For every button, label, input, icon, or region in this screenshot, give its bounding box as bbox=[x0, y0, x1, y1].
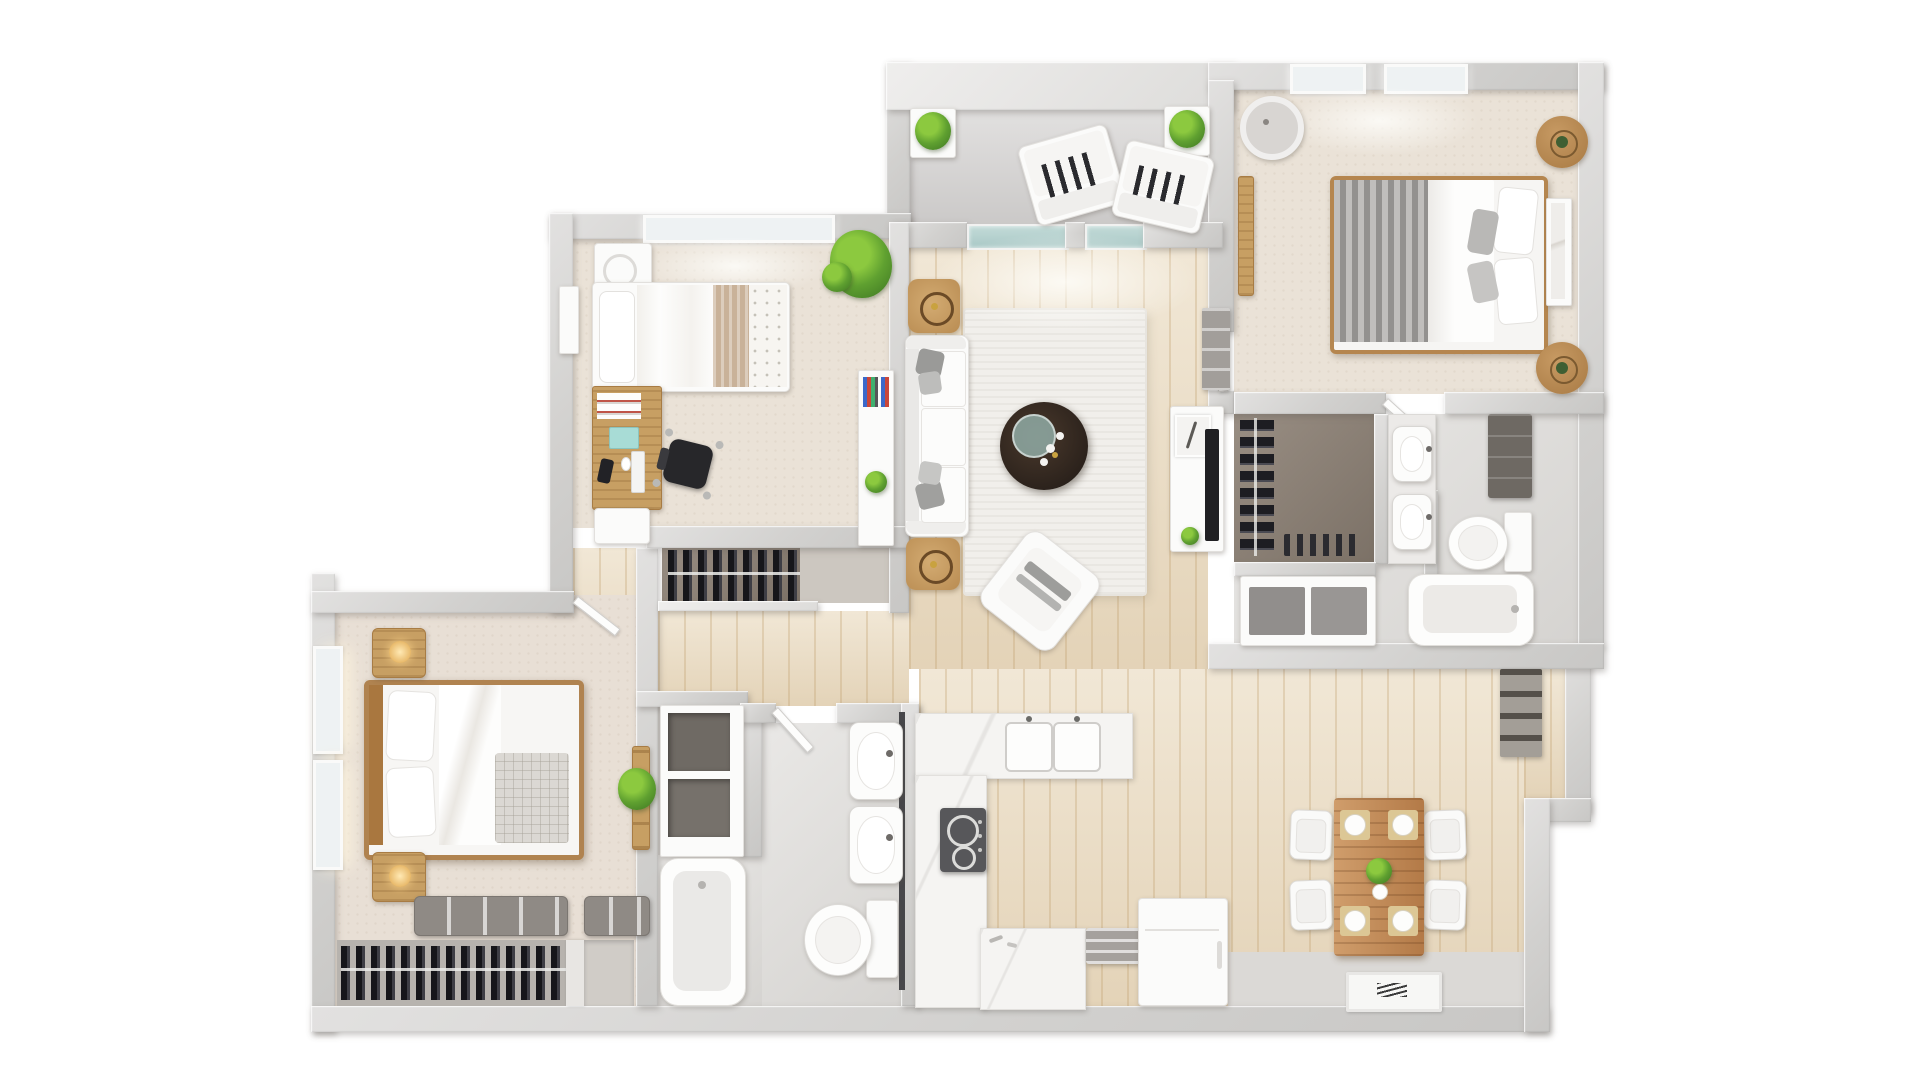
dining-chair bbox=[1289, 809, 1333, 860]
kitchen-faucet bbox=[1026, 716, 1032, 722]
chair-wheel bbox=[652, 478, 662, 488]
wall bbox=[311, 591, 574, 613]
wall bbox=[1374, 414, 1388, 564]
bedroom3-window bbox=[643, 215, 835, 243]
floor-plan-canvas bbox=[0, 0, 1920, 1080]
faucet bbox=[1426, 446, 1432, 452]
counter-detail bbox=[1007, 942, 1018, 948]
coffee-cup bbox=[1040, 458, 1048, 466]
bedroom2-bed bbox=[1330, 176, 1548, 354]
desk-notebook bbox=[609, 427, 639, 449]
stove-dial bbox=[978, 820, 982, 824]
bookshelf-console bbox=[858, 370, 894, 546]
bedroom3-closet-rod bbox=[668, 572, 800, 575]
bedroom2-window bbox=[1384, 64, 1468, 94]
sofa-pillow bbox=[917, 460, 942, 485]
closet-shelf-bay bbox=[584, 940, 634, 1006]
tv-console bbox=[1170, 406, 1224, 552]
side-table-tray bbox=[920, 292, 954, 326]
place-setting bbox=[1388, 906, 1418, 936]
closet-mat bbox=[800, 548, 889, 603]
bed-pillow bbox=[385, 690, 437, 762]
cart-lid-line bbox=[1145, 929, 1219, 931]
bed-pillow bbox=[1493, 186, 1540, 256]
bed-polka-blanket bbox=[749, 285, 787, 387]
leaning-wall-art bbox=[1546, 198, 1572, 306]
dining-chair bbox=[1423, 879, 1467, 930]
bed-pillow bbox=[385, 766, 437, 838]
wall bbox=[1065, 222, 1085, 248]
dish-rack bbox=[1086, 928, 1142, 964]
place-setting bbox=[1388, 810, 1418, 840]
kitchen-counter-bottom bbox=[980, 928, 1086, 1010]
wall bbox=[1524, 798, 1550, 1032]
wall bbox=[1234, 562, 1376, 576]
centerpiece-bowl bbox=[1372, 884, 1388, 900]
desk-phone bbox=[597, 458, 615, 484]
closet-shoe-row bbox=[1284, 534, 1362, 556]
doormat bbox=[1346, 972, 1442, 1012]
nightstand-plant bbox=[1556, 362, 1568, 374]
dining-chair bbox=[1423, 809, 1467, 860]
sofa-pillow bbox=[918, 371, 943, 396]
balcony-parapet-wall bbox=[886, 62, 1234, 110]
potted-plant-leaf bbox=[822, 262, 852, 292]
burner bbox=[947, 815, 979, 847]
gold-decor bbox=[1052, 452, 1058, 458]
bathroom2-sink bbox=[849, 722, 903, 800]
master-closet bbox=[337, 940, 573, 1006]
planter-plant bbox=[1169, 110, 1205, 148]
doormat-motif bbox=[1377, 983, 1407, 997]
cooktop bbox=[940, 808, 986, 872]
bathtub bbox=[1408, 574, 1534, 646]
wall bbox=[1234, 392, 1386, 414]
bedroom3-single-bed bbox=[592, 282, 790, 392]
wall bbox=[549, 213, 573, 613]
wall bbox=[1208, 80, 1234, 332]
console-books bbox=[863, 377, 889, 407]
sofa-cushion bbox=[921, 408, 966, 466]
potted-plant bbox=[618, 768, 656, 810]
master-closet-rod bbox=[341, 968, 567, 971]
bedroom2-wall-bench bbox=[1238, 176, 1254, 296]
coffee-table bbox=[1000, 402, 1088, 490]
wall bbox=[1208, 643, 1604, 669]
wall bbox=[1565, 645, 1591, 813]
desk bbox=[592, 386, 662, 510]
desk-mouse bbox=[621, 457, 631, 471]
sliding-glass-door-pane bbox=[1085, 224, 1147, 250]
office-chair-seat bbox=[661, 437, 714, 490]
bed-knit-blanket bbox=[495, 753, 569, 843]
closet-divider bbox=[566, 940, 584, 1006]
vanity-door bbox=[1311, 587, 1367, 635]
art-canvas bbox=[1551, 203, 1565, 299]
nightstand-plant bbox=[1556, 136, 1568, 148]
side-table-decor bbox=[930, 561, 937, 568]
console-plant bbox=[1181, 527, 1199, 545]
bedroom2-window bbox=[1290, 64, 1366, 94]
closet-rod bbox=[1254, 418, 1257, 556]
cubby bbox=[668, 713, 730, 771]
sliding-glass-door bbox=[967, 224, 1069, 250]
vanity-door bbox=[1249, 587, 1305, 635]
ceiling-fan bbox=[1240, 96, 1304, 160]
centerpiece-plant bbox=[1366, 858, 1392, 884]
cubby bbox=[668, 779, 730, 837]
side-table-tray bbox=[919, 550, 953, 584]
sectional-sofa bbox=[905, 335, 969, 537]
side-table-decor bbox=[931, 303, 938, 310]
kitchen-sink-basin bbox=[1053, 722, 1101, 772]
stove-dial bbox=[978, 834, 982, 838]
sofa-armrest bbox=[906, 336, 966, 349]
chair-wheel bbox=[664, 428, 674, 438]
nightstand bbox=[372, 628, 426, 678]
storage-bench bbox=[414, 896, 568, 936]
cart-handle bbox=[1217, 941, 1222, 969]
master-bed bbox=[364, 680, 584, 860]
bathroom1-sink bbox=[1392, 426, 1432, 482]
bedroom3-closet-clothes bbox=[668, 550, 800, 601]
wall bbox=[1444, 392, 1604, 414]
feather-glyph bbox=[1186, 421, 1198, 449]
burner bbox=[952, 846, 976, 870]
planter-plant bbox=[915, 112, 951, 150]
closet-hanging-clothes bbox=[1240, 420, 1274, 554]
toilet-seat bbox=[1458, 525, 1498, 561]
storage-bench bbox=[584, 896, 650, 936]
vanity-cabinet bbox=[1240, 576, 1376, 646]
closet-edge bbox=[658, 601, 818, 611]
faucet bbox=[886, 750, 893, 757]
bed-tan-throw bbox=[713, 285, 749, 387]
bathtub-basin bbox=[673, 871, 731, 991]
fan-hub bbox=[1263, 119, 1269, 125]
stove-dial bbox=[978, 848, 982, 852]
bathtub-basin bbox=[1423, 585, 1517, 633]
desk-books bbox=[597, 393, 641, 419]
kitchen-counter-sink bbox=[915, 713, 1133, 779]
coffee-cup bbox=[1056, 432, 1064, 440]
kitchen-sink-basin bbox=[1005, 722, 1053, 772]
toilet-bowl bbox=[1448, 516, 1508, 570]
place-setting bbox=[1340, 810, 1370, 840]
pantry-shelf bbox=[1500, 669, 1542, 757]
wicker-nightstand bbox=[1536, 342, 1588, 394]
nightstand bbox=[372, 852, 426, 902]
wall-art-frame bbox=[559, 286, 579, 354]
faucet bbox=[1426, 514, 1432, 520]
kitchen-cart bbox=[1138, 898, 1228, 1006]
kitchen-faucet bbox=[1074, 716, 1080, 722]
tv-screen bbox=[1205, 429, 1219, 541]
small-cabinet bbox=[594, 508, 650, 544]
wall-shelf-cabinet bbox=[1202, 308, 1230, 390]
master-window bbox=[313, 760, 343, 870]
table-lamp bbox=[389, 865, 411, 887]
tub-drain bbox=[698, 881, 706, 889]
tub-faucet bbox=[1511, 605, 1519, 613]
faucet bbox=[886, 834, 893, 841]
bathroom1-sink bbox=[1392, 494, 1432, 550]
bed-headboard bbox=[369, 685, 383, 845]
dining-chair bbox=[1289, 879, 1333, 930]
desk-keyboard bbox=[631, 451, 645, 493]
counter-detail bbox=[989, 935, 1004, 944]
master-window bbox=[313, 646, 343, 754]
master-closet-clothes bbox=[341, 946, 567, 1000]
toilet-seat bbox=[815, 916, 861, 964]
place-setting bbox=[1340, 906, 1370, 936]
bed-pillow bbox=[1493, 256, 1539, 325]
wicker-side-table bbox=[908, 279, 960, 333]
linen-cubbies bbox=[660, 705, 744, 857]
bathroom2-bathtub bbox=[660, 858, 746, 1006]
toilet-bowl bbox=[804, 904, 872, 976]
bed-duvet-fold bbox=[439, 685, 501, 845]
toilet-tank bbox=[1504, 512, 1532, 572]
bedroom-dresser bbox=[1488, 414, 1532, 498]
bathroom2-sink bbox=[849, 806, 903, 884]
console-plant bbox=[865, 471, 887, 493]
table-lamp bbox=[389, 641, 411, 663]
bed-duvet bbox=[637, 285, 715, 387]
bed-gray-blanket bbox=[1334, 180, 1428, 342]
wicker-side-table bbox=[906, 538, 960, 590]
wicker-nightstand bbox=[1536, 116, 1588, 168]
bed-pillow bbox=[599, 291, 635, 383]
dining-table bbox=[1334, 798, 1424, 956]
